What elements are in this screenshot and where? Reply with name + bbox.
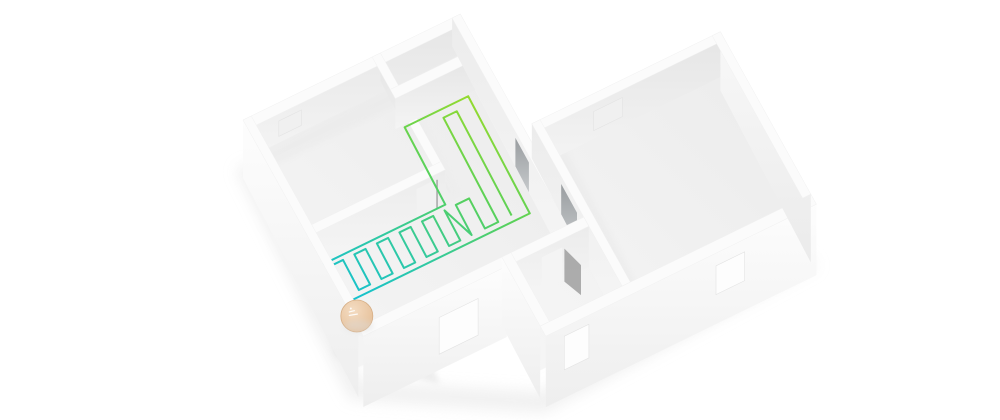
floorplan-canvas xyxy=(0,0,1000,420)
puck-shadow xyxy=(344,320,374,332)
puck-mark-dot xyxy=(350,308,352,310)
floorplan-scene xyxy=(0,0,1000,420)
